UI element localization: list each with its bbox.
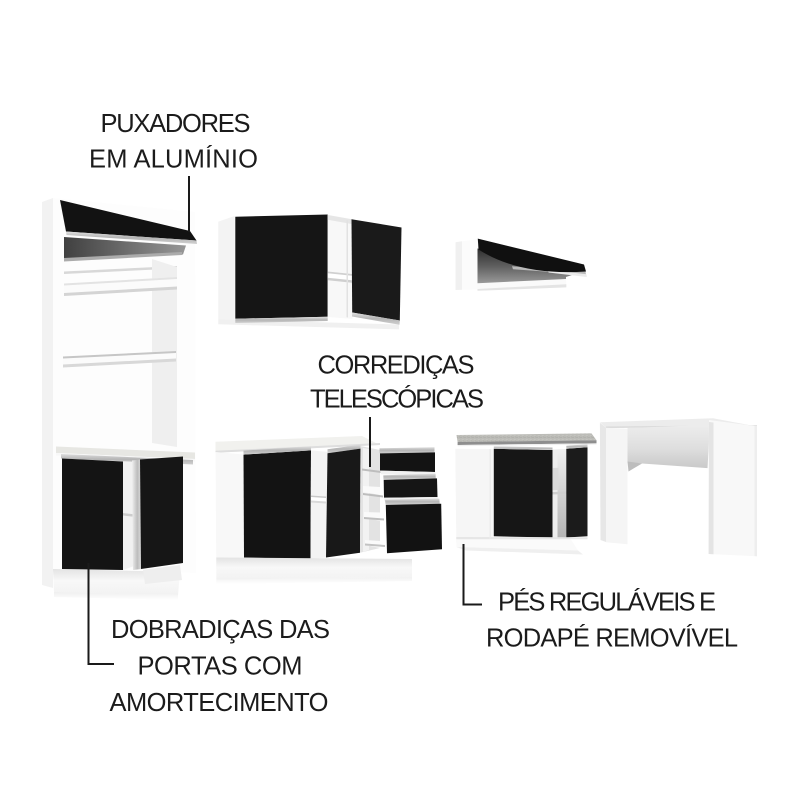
svg-text:TELESCÓPICAS: TELESCÓPICAS [310, 385, 484, 414]
svg-text:EM ALUMÍNIO: EM ALUMÍNIO [89, 145, 258, 174]
svg-text:PORTAS COM: PORTAS COM [138, 653, 303, 681]
svg-text:CORREDIÇAS: CORREDIÇAS [318, 352, 475, 380]
svg-text:PÉS REGULÁVEIS E: PÉS REGULÁVEIS E [498, 588, 716, 617]
svg-text:DOBRADIÇAS DAS: DOBRADIÇAS DAS [111, 616, 330, 644]
svg-text:AMORTECIMENTO: AMORTECIMENTO [110, 689, 329, 717]
svg-text:RODAPÉ REMOVÍVEL: RODAPÉ REMOVÍVEL [486, 624, 738, 653]
svg-text:PUXADORES: PUXADORES [101, 110, 251, 138]
